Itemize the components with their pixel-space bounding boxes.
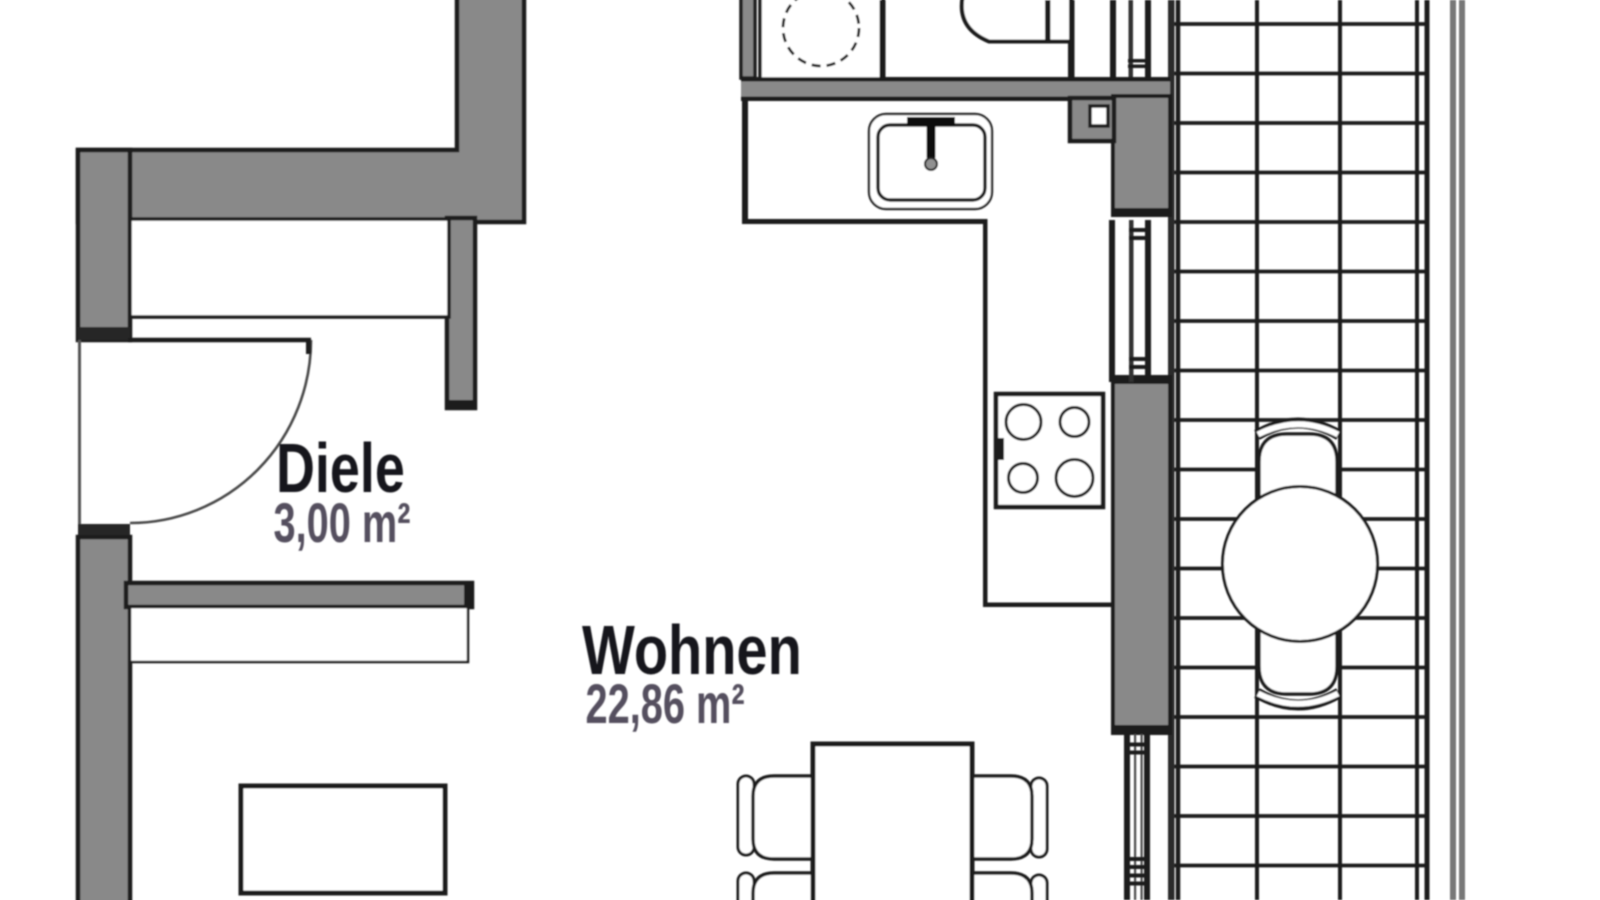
svg-text:22,86 m²: 22,86 m²	[586, 673, 745, 735]
svg-text:3,00 m²: 3,00 m²	[274, 492, 411, 554]
